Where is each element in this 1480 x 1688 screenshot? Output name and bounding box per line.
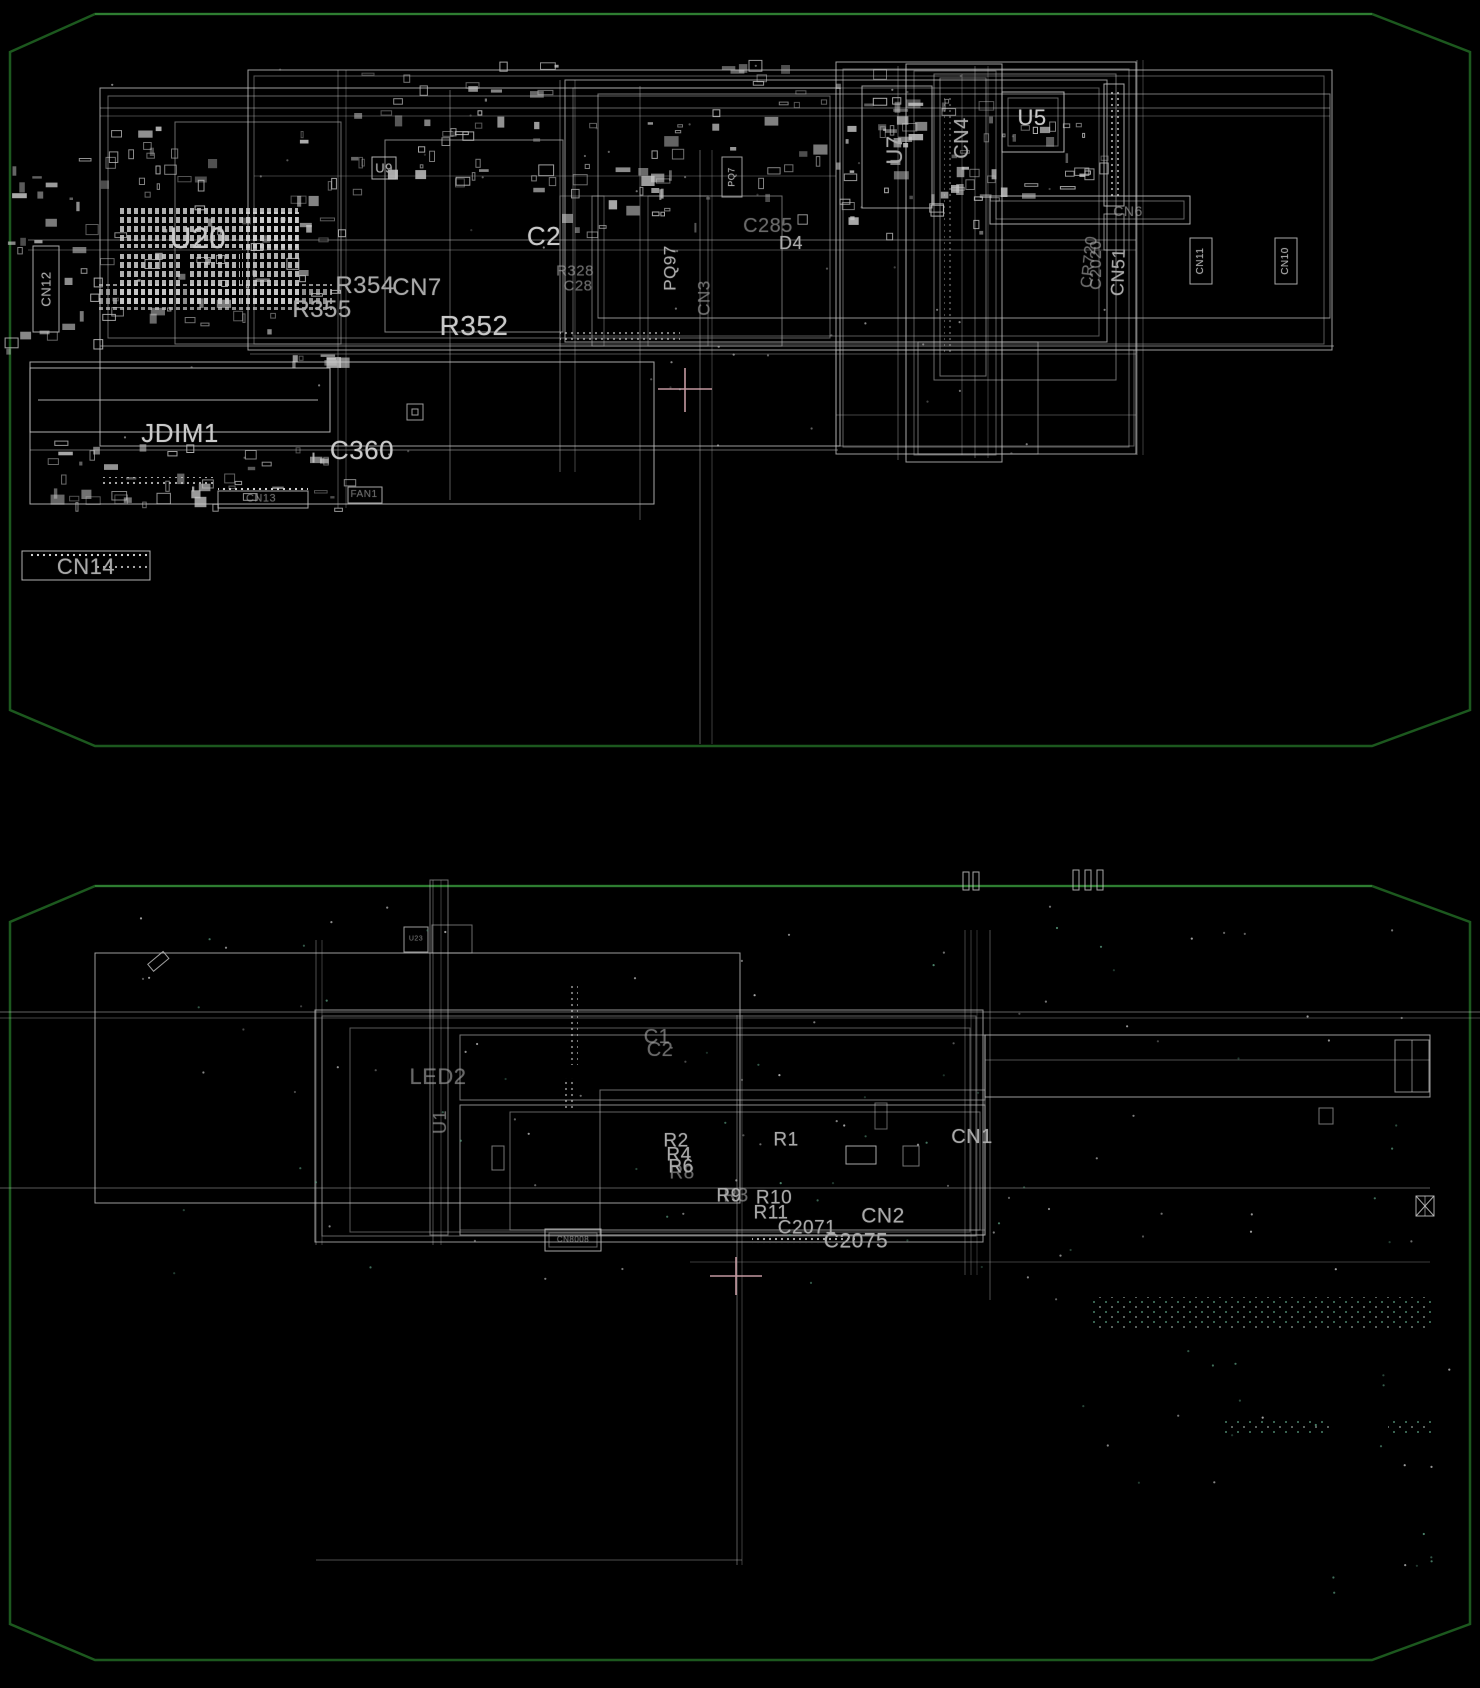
component-label-u23: U23 (409, 936, 423, 943)
component-label-u9: U9 (375, 162, 393, 175)
component-label-c2020: C2020 (1089, 240, 1105, 290)
component-label-r352: R352 (440, 312, 509, 340)
component-label-r328: R328 (556, 264, 594, 279)
component-label-c2075: C2075 (824, 1231, 888, 1252)
component-label-cn11: CN11 (1196, 248, 1206, 275)
component-label-cn51: CN51 (1108, 248, 1128, 297)
component-label-r1: R1 (773, 1131, 798, 1150)
bottom-board-canvas[interactable]: C1 C2 LED2 U1 U23 R2 R4 R6 R8 R1 R9 R3 R… (0, 880, 1480, 1688)
component-label-u20: U20 (170, 224, 227, 254)
component-label-c28: C28 (563, 279, 592, 294)
component-label-u1: U1 (431, 1110, 449, 1134)
component-label-cn3: CN3 (696, 280, 713, 316)
component-label-fan1: FAN1 (350, 490, 377, 500)
component-label-cn1: CN1 (951, 1127, 993, 1147)
component-label-cn7: CN7 (392, 276, 442, 300)
component-label-cn4: CN4 (952, 117, 972, 159)
component-label-cn2: CN2 (861, 1206, 905, 1227)
component-label-cn6: CN6 (1113, 204, 1143, 218)
component-label-r8: R8 (669, 1164, 694, 1183)
component-label-d4: D4 (779, 234, 803, 252)
component-label-cn10: CN10 (1281, 247, 1291, 275)
component-label-led2: LED2 (409, 1066, 466, 1088)
component-label-r355: R355 (292, 298, 351, 322)
component-label-cn8008: CN8008 (557, 1236, 589, 1244)
component-label-jdim1: JDIM1 (141, 420, 219, 446)
component-label-c2b: C2 (647, 1040, 674, 1060)
component-label-c2: C2 (527, 223, 561, 249)
component-label-c360: C360 (330, 437, 394, 463)
component-label-cn12: CN12 (40, 271, 53, 306)
top-board-canvas[interactable]: U20 CN12 U9 C2 CN7 R354 R355 R352 R328 C… (0, 0, 1480, 760)
component-label-pq97: PQ97 (662, 245, 679, 290)
component-label-u5: U5 (1017, 107, 1046, 129)
component-label-cn13: CN13 (246, 494, 276, 505)
component-label-u7: U7 (884, 135, 906, 164)
component-label-pq7: PQ7 (728, 167, 737, 187)
component-label-r354: R354 (335, 274, 394, 298)
component-label-cn14: CN14 (57, 556, 115, 578)
component-label-r3: R3 (723, 1187, 748, 1206)
boardview-screen: U20 CN12 U9 C2 CN7 R354 R355 R352 R328 C… (0, 0, 1480, 1688)
